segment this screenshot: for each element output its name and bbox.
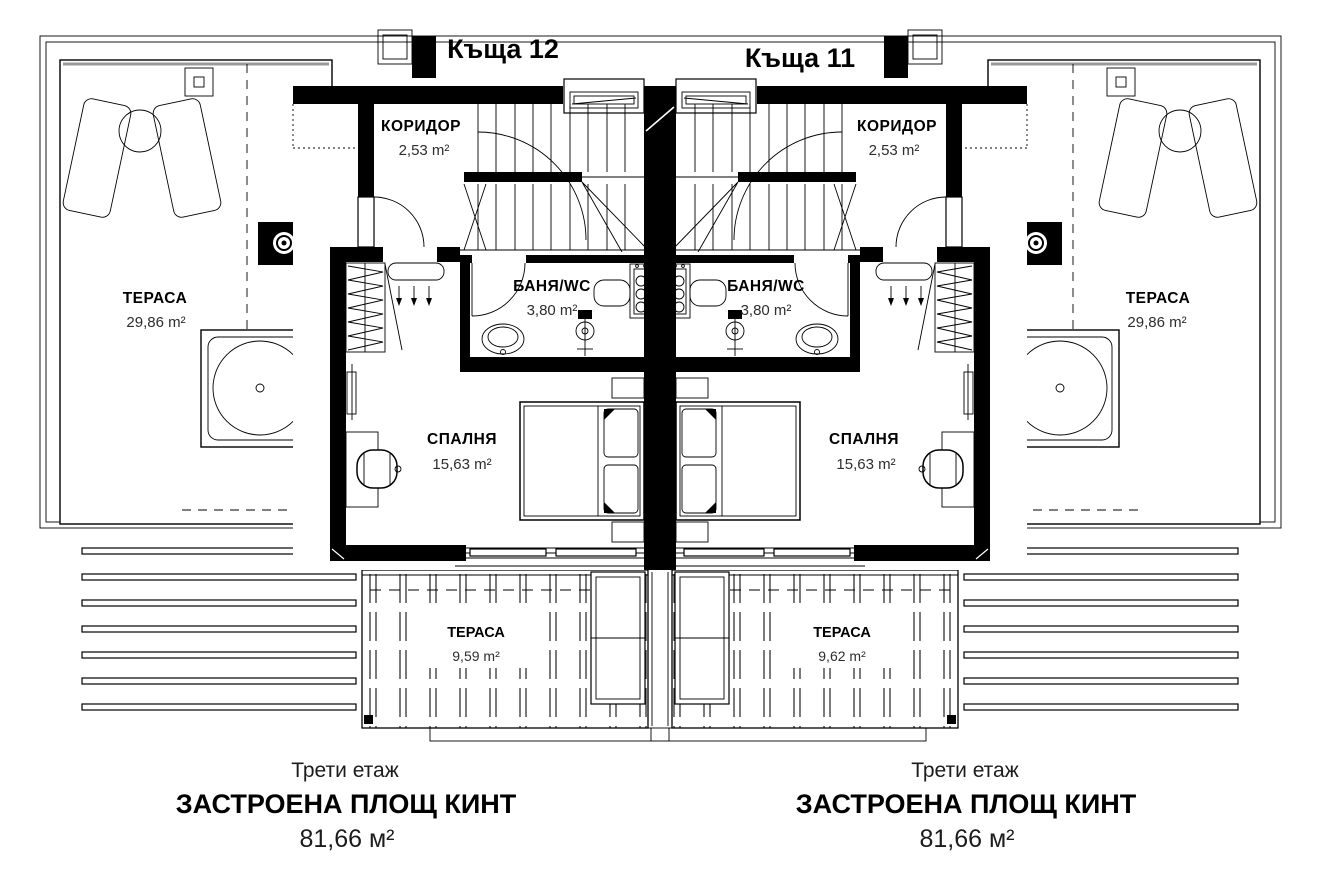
caption-label-12: ЗАСТРОЕНА ПЛОЩ КИНТ: [176, 789, 517, 819]
room-label-bath-11: БАНЯ/WC: [727, 278, 805, 295]
caption-area-12: 81,66 м²: [299, 825, 394, 853]
house-12-title: Къща 12: [447, 34, 559, 64]
room-area-bedroom-12: 15,63 m²: [432, 456, 491, 473]
room-label-bedroom-11: СПАЛНЯ: [829, 431, 899, 448]
room-area-bedroom-11: 15,63 m²: [836, 456, 895, 473]
floor-plan-page: Къща 12 Къща 11 КОРИДОР 2,53 m² КОРИДОР …: [0, 0, 1320, 884]
room-area-corridor-11: 2,53 m²: [869, 142, 920, 159]
room-area-terrace-12: 29,86 m²: [126, 314, 185, 331]
room-area-terrace-11: 29,86 m²: [1127, 314, 1186, 331]
room-area-balcony-11: 9,62 m²: [818, 648, 866, 664]
room-label-balcony-11: ТЕРАСА: [813, 625, 871, 641]
floor-plan-drawing: Къща 12 Къща 11 КОРИДОР 2,53 m² КОРИДОР …: [0, 0, 1320, 884]
room-area-bath-12: 3,80 m²: [527, 302, 578, 319]
party-wall: [644, 86, 676, 570]
house-11-half: [660, 30, 1260, 728]
caption-floor-12: Трети етаж: [291, 759, 399, 782]
room-label-corridor-11: КОРИДОР: [857, 118, 937, 135]
room-area-corridor-12: 2,53 m²: [399, 142, 450, 159]
caption-area-11: 81,66 м²: [919, 825, 1014, 853]
room-label-bedroom-12: СПАЛНЯ: [427, 431, 497, 448]
room-label-terrace-11: ТЕРАСА: [1126, 290, 1191, 307]
caption-floor-11: Трети етаж: [911, 759, 1019, 782]
room-label-balcony-12: ТЕРАСА: [447, 625, 505, 641]
caption-label-11: ЗАСТРОЕНА ПЛОЩ КИНТ: [796, 789, 1137, 819]
room-label-corridor-12: КОРИДОР: [381, 118, 461, 135]
room-label-terrace-12: ТЕРАСА: [123, 290, 188, 307]
room-area-bath-11: 3,80 m²: [741, 302, 792, 319]
house-12-half: [60, 30, 660, 728]
room-area-balcony-12: 9,59 m²: [452, 648, 500, 664]
room-label-bath-12: БАНЯ/WC: [513, 278, 591, 295]
house-11-title: Къща 11: [745, 43, 855, 73]
